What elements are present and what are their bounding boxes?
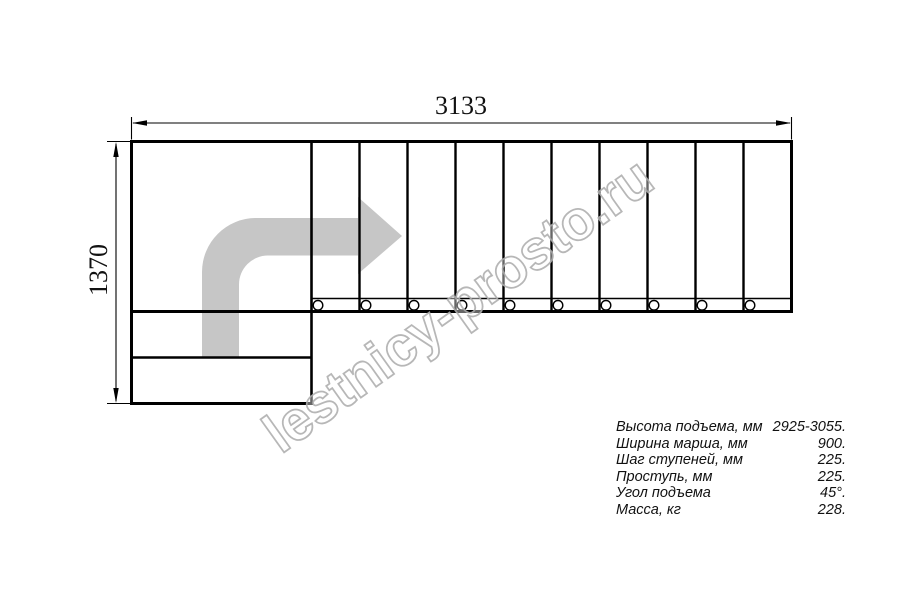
height-dimension-label: 1370 xyxy=(84,244,113,296)
spec-label: Угол подъема xyxy=(616,485,711,502)
bolt-circle-icon xyxy=(649,301,659,311)
dim-arrowhead-right-icon xyxy=(776,120,791,125)
spec-label: Шаг ступеней, мм xyxy=(616,452,743,469)
spec-value: 225. xyxy=(818,469,846,486)
spec-table: Высота подъема, мм 2925-3055. Ширина мар… xyxy=(616,419,846,519)
dimension-height: 1370 xyxy=(84,142,130,404)
stair-drawing-page: 3133 1370 lestnicy-prosto.ru Высота подъ… xyxy=(0,0,900,600)
spec-row-rise-angle: Угол подъема 45°. xyxy=(616,485,846,502)
spec-label: Проступь, мм xyxy=(616,469,712,486)
spec-label: Ширина марша, мм xyxy=(616,436,748,453)
spec-label: Масса, кг xyxy=(616,502,681,519)
dim-arrowhead-left-icon xyxy=(132,120,147,125)
width-dimension-label: 3133 xyxy=(435,91,487,120)
spec-value: 228. xyxy=(818,502,846,519)
bolt-circle-icon xyxy=(745,301,755,311)
dim-arrowhead-up-icon xyxy=(113,142,118,157)
dim-arrowhead-down-icon xyxy=(113,388,118,403)
bolt-circle-icon xyxy=(553,301,563,311)
spec-value: 225. xyxy=(818,452,846,469)
spec-row-tread-depth: Проступь, мм 225. xyxy=(616,469,846,486)
bolt-circle-icon xyxy=(313,301,323,311)
spec-row-flight-width: Ширина марша, мм 900. xyxy=(616,436,846,453)
spec-value: 45°. xyxy=(820,485,846,502)
bolt-circle-icon xyxy=(697,301,707,311)
spec-value: 2925-3055. xyxy=(773,419,846,436)
spec-row-mass: Масса, кг 228. xyxy=(616,502,846,519)
bolt-circles xyxy=(313,301,755,311)
spec-label: Высота подъема, мм xyxy=(616,419,763,436)
spec-value: 900. xyxy=(818,436,846,453)
bolt-circle-icon xyxy=(601,301,611,311)
bolt-circle-icon xyxy=(361,301,371,311)
spec-row-step-pitch: Шаг ступеней, мм 225. xyxy=(616,452,846,469)
spec-row-lift-height: Высота подъема, мм 2925-3055. xyxy=(616,419,846,436)
dimension-width: 3133 xyxy=(132,91,792,140)
